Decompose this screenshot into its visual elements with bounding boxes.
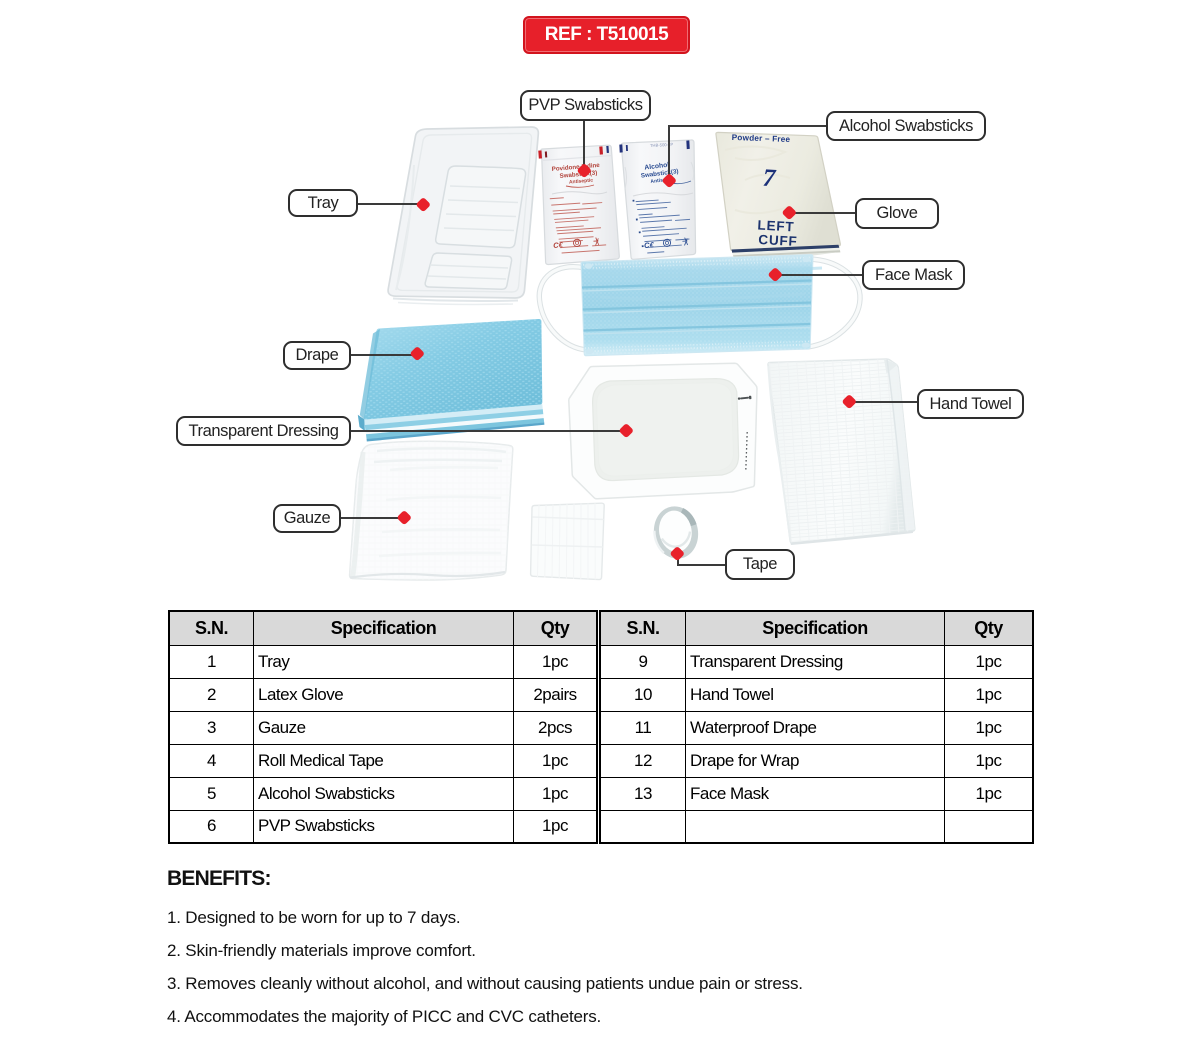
svg-text:C€: C€ (644, 240, 655, 250)
svg-text:C€: C€ (553, 240, 564, 250)
svg-text:CUFF: CUFF (758, 232, 798, 249)
